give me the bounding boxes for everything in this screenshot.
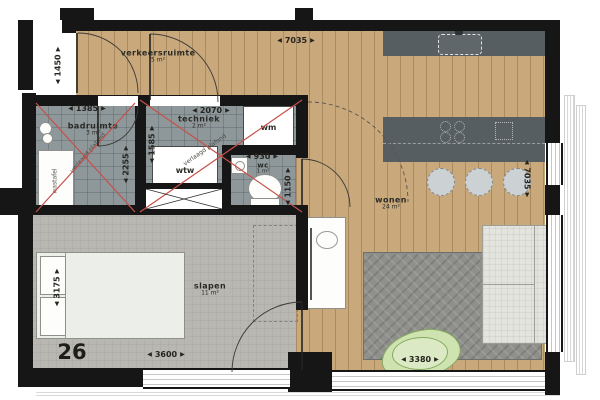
sofa-cushion-divider — [483, 284, 535, 285]
floor-plan: wastafel wtw wm verkeersruimte 5 m² badr… — [0, 0, 600, 400]
oven-icon — [495, 122, 513, 140]
room-label-badruimte: badruimte 3 m² — [68, 122, 118, 137]
wall-bottom-left — [18, 368, 143, 387]
wall-right-upper — [545, 20, 560, 143]
room-label-wonen: wonen 24 m² — [375, 196, 407, 211]
dim-value: 3380 — [409, 355, 431, 364]
wall-left-mid — [22, 93, 36, 215]
washbasin-label: wastafel — [52, 168, 59, 193]
dim-arrow-right: ▶ — [285, 168, 291, 173]
wall-entry-outer — [18, 20, 33, 90]
dim-arrow-right: ▶ — [273, 154, 278, 160]
dim-value: 7035 — [523, 167, 532, 189]
dim-wc-depth: ◀ 1150 ▶ — [284, 157, 293, 217]
wall-top — [62, 20, 560, 31]
room-label-wc: wc 1 m² — [257, 162, 270, 175]
dim-value: 2255 — [122, 153, 131, 175]
dim-value: 1585 — [148, 133, 157, 155]
dim-arrow-right: ▶ — [524, 193, 530, 198]
dim-arrow-right: ▶ — [55, 47, 61, 52]
wall-left-lower — [18, 215, 33, 387]
sofa — [482, 225, 548, 344]
burner-icon — [454, 132, 465, 143]
apartment-number: 26 — [57, 340, 86, 364]
kitchen-sink — [438, 34, 482, 55]
wall-entry-inner — [62, 20, 76, 33]
stool — [427, 168, 455, 196]
dim-value: 3600 — [155, 350, 177, 359]
burner-icon — [454, 121, 465, 132]
dim-arrow-left: ◀ — [149, 159, 155, 164]
dim-top-width: ◀ 7035 ▶ — [251, 36, 341, 45]
dim-arrow-left: ◀ — [285, 201, 291, 206]
wall-stub-top-mid — [295, 8, 313, 20]
burner-icon — [440, 132, 451, 143]
dim-arrow-left: ◀ — [68, 106, 73, 112]
bath-fixture-icon — [42, 133, 53, 144]
dim-arrow-left: ◀ — [192, 108, 197, 114]
room-label-slapen: slapen 11 m² — [194, 282, 226, 297]
dim-arrow-left: ◀ — [55, 80, 61, 85]
dim-arrow-left: ◀ — [123, 179, 129, 184]
dim-value: 7035 — [285, 36, 307, 45]
kitchen-island-counter — [383, 117, 545, 162]
shaft-void — [146, 189, 222, 209]
window-living — [332, 370, 545, 391]
exterior-sill-right — [564, 95, 575, 362]
cabinet-door-line — [310, 228, 312, 300]
wall-bath-right — [135, 95, 146, 215]
dim-arrow-left: ◀ — [54, 302, 60, 307]
dim-bedroom-width: ◀ 3600 ▶ — [128, 350, 204, 359]
wc-handbasin-bowl — [235, 161, 245, 171]
dim-value: 1450 — [54, 54, 63, 76]
dim-rug-width: ◀ 3380 ▶ — [384, 355, 456, 364]
dim-arrow-right: ▶ — [54, 269, 60, 274]
stool — [465, 168, 493, 196]
dim-value: 3175 — [53, 276, 62, 298]
dim-arrow-left: ◀ — [246, 154, 251, 160]
dim-arrow-right: ▶ — [123, 146, 129, 151]
dim-arrow-left: ◀ — [524, 160, 530, 165]
wardrobe-zone-dashed — [253, 225, 298, 322]
dim-arrow-right: ▶ — [101, 106, 106, 112]
dim-arrow-left: ◀ — [401, 357, 406, 363]
wall-stub-top-left — [60, 8, 94, 20]
burner-icon — [440, 121, 451, 132]
exterior-sill-right-outer — [576, 105, 586, 375]
dim-hall-depth: ◀ 1450 ▶ — [54, 36, 63, 96]
dim-arrow-right: ▶ — [180, 352, 185, 358]
window-right-upper — [546, 143, 563, 185]
wall-post-bottom — [288, 352, 332, 392]
dim-arrow-right: ▶ — [434, 357, 439, 363]
room-label-techniek: techniek 2 m² — [178, 115, 220, 130]
window-bedroom — [143, 368, 290, 389]
tall-cabinet — [307, 217, 346, 309]
wall-right-pier — [545, 185, 560, 215]
wall-left-step — [0, 188, 22, 215]
dim-arrow-right: ▶ — [149, 126, 155, 131]
counter-edge-dashed — [383, 143, 545, 144]
dim-bath-width: ◀ 1385 ▶ — [57, 104, 117, 113]
dim-arrow-right: ▶ — [225, 108, 230, 114]
dim-value: 1385 — [76, 104, 98, 113]
dim-wc-width: ◀ 930 ▶ — [234, 152, 290, 161]
dim-bath-depth: ◀ 2255 ▶ — [122, 135, 131, 195]
dim-arrow-left: ◀ — [147, 352, 152, 358]
dim-tech-width: ◀ 2070 ▶ — [178, 106, 244, 115]
dim-arrow-left: ◀ — [277, 38, 282, 44]
dim-arrow-right: ▶ — [310, 38, 315, 44]
wall-living-divider-upper — [296, 95, 308, 158]
door-opening-techniek — [150, 96, 220, 106]
room-label-verkeersruimte: verkeersruimte 5 m² — [121, 49, 196, 64]
dim-living-depth: ◀ 7035 ▶ — [523, 149, 532, 209]
dim-value: 2070 — [200, 106, 222, 115]
dim-tech-depth: ◀ 1585 ▶ — [148, 115, 157, 175]
dim-value: 1150 — [284, 175, 293, 197]
dim-bedroom-depth: ◀ 3175 ▶ — [53, 258, 62, 318]
wall-living-divider-mid — [296, 205, 308, 310]
dim-value: 930 — [254, 152, 271, 161]
wall-right-lower — [545, 352, 560, 395]
cabinet-circle-icon — [316, 231, 338, 249]
washing-machine: wm — [243, 106, 294, 148]
window-right-lower — [546, 215, 563, 352]
